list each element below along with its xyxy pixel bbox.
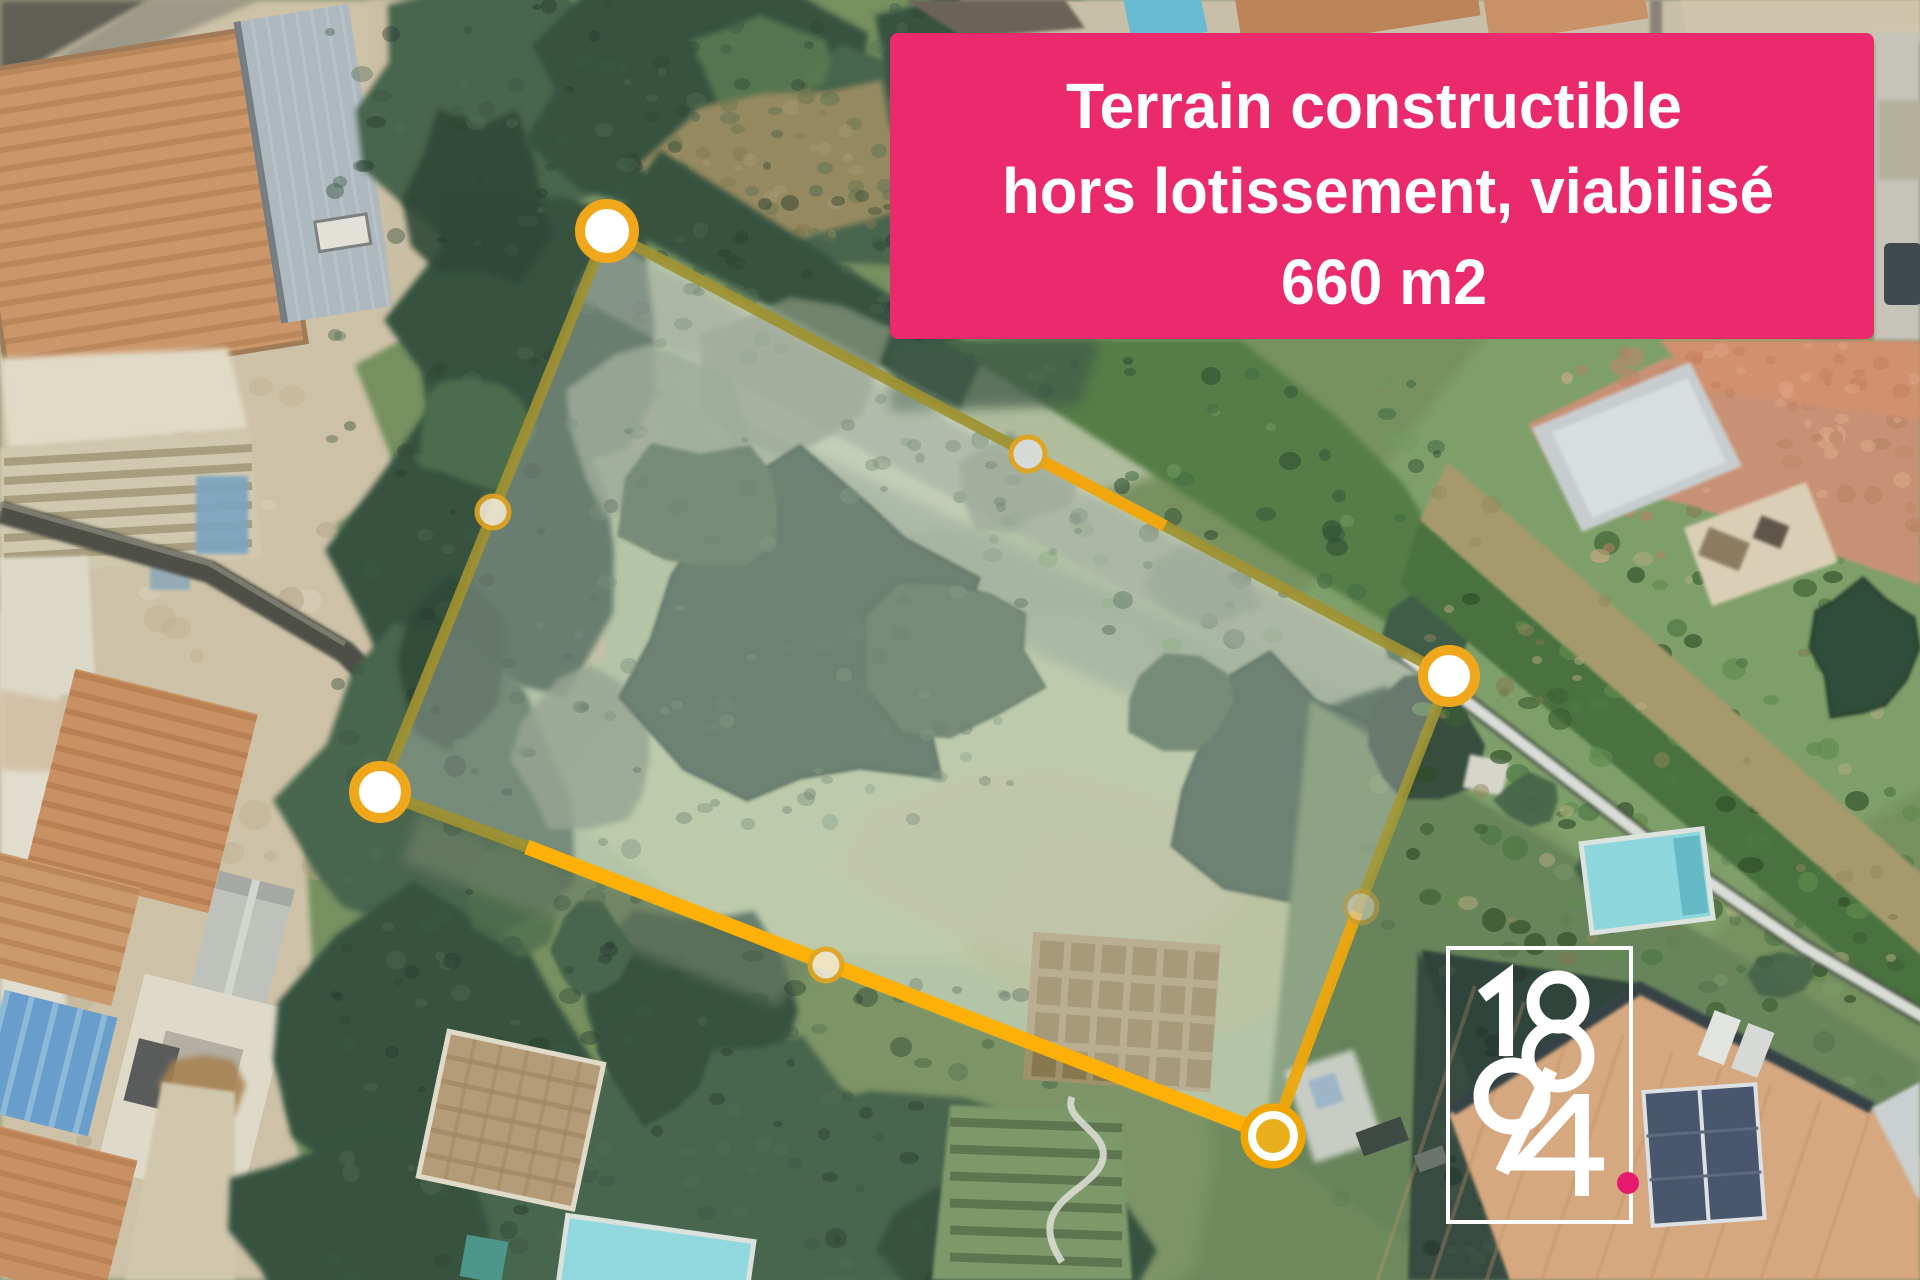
svg-text:hors lotissement, viabilisé: hors lotissement, viabilisé (1002, 155, 1774, 227)
svg-text:Terrain constructible: Terrain constructible (1066, 70, 1682, 142)
svg-text:660 m2: 660 m2 (1281, 246, 1487, 318)
